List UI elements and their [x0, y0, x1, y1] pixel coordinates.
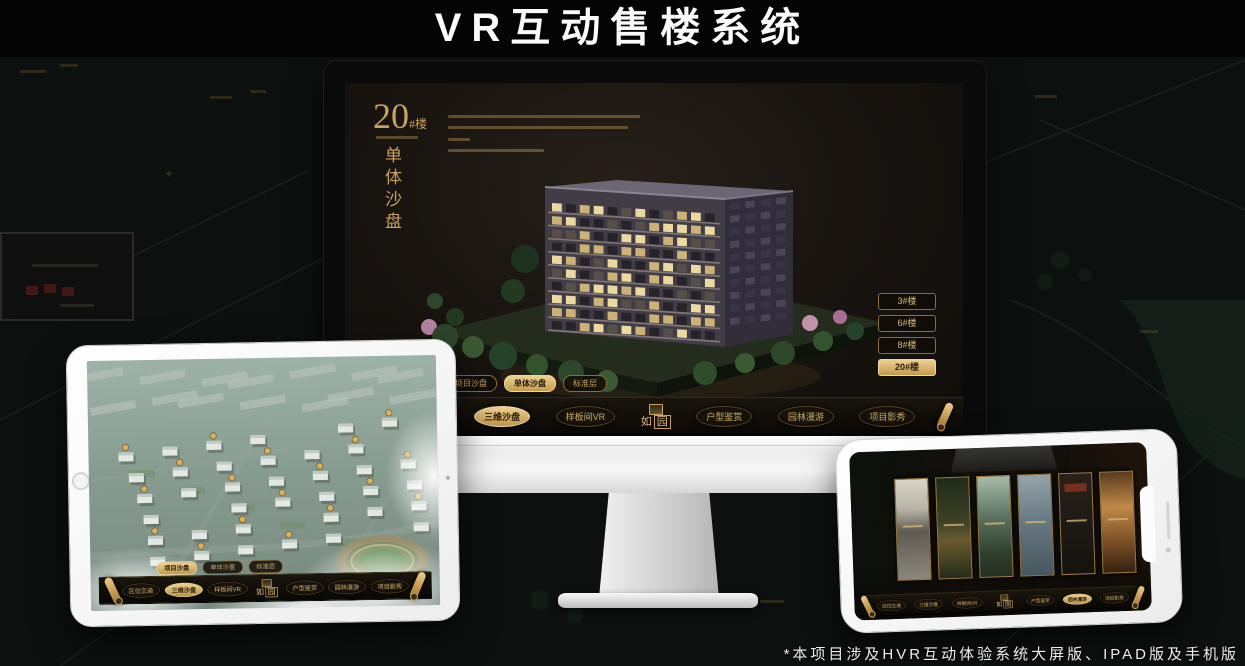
- ipad-device: 项目沙盘 单体沙盘 标准层 区位交通 三维沙盘 样板间VR 如园 户型鉴赏 园林…: [66, 339, 461, 628]
- logo-char-right: 园: [654, 415, 671, 429]
- card-caption: [985, 522, 1004, 525]
- nav-item-project-show[interactable]: 项目影秀: [1100, 591, 1129, 603]
- ceiling-beam: [950, 445, 1058, 473]
- sandbox-heading: 20#楼 单体沙盘: [373, 99, 427, 234]
- heading-number: 20: [373, 96, 409, 136]
- scene-card-building[interactable]: [1017, 473, 1055, 576]
- floor-button-3[interactable]: 3#楼: [878, 293, 936, 310]
- notch: [1140, 486, 1157, 562]
- nav-item-3d-sandbox[interactable]: 三维沙盘: [914, 598, 943, 610]
- nav-item-garden-tour[interactable]: 园林漫游: [778, 406, 834, 427]
- card-caption: [1026, 521, 1045, 524]
- nav-item-project-show[interactable]: 项目影秀: [859, 406, 915, 427]
- nav-item-model-room-vr[interactable]: 样板间VR: [208, 581, 249, 596]
- logo-char-left: 如: [641, 416, 652, 428]
- monitor-view-tabs: 项目沙盘 单体沙盘 标准层: [445, 375, 607, 392]
- logo-char-right: 园: [266, 587, 278, 597]
- nav-item-location[interactable]: 区位交通: [877, 599, 906, 611]
- tab-standard-floor[interactable]: 标准层: [248, 560, 283, 574]
- nav-item-garden-tour[interactable]: 园林漫游: [1063, 593, 1092, 605]
- scene-card-courtyard[interactable]: [935, 476, 973, 579]
- tab-single-sandbox[interactable]: 单体沙盘: [504, 375, 556, 392]
- logo-char-left: 如: [256, 588, 264, 597]
- monitor-stand-neck: [598, 490, 720, 596]
- ipad-bottom-nav: 区位交通 三维沙盘 样板间VR 如园 户型鉴赏 园林漫游 项目影秀: [99, 571, 432, 605]
- scroll-icon[interactable]: [860, 595, 875, 617]
- home-button[interactable]: [72, 472, 90, 490]
- phone-screen: 区位交通 三维沙盘 样板间VR 如园 户型鉴赏 园林漫游 项目影秀: [849, 442, 1152, 620]
- ipad-screen: 项目沙盘 单体沙盘 标准层 区位交通 三维沙盘 样板间VR 如园 户型鉴赏 园林…: [87, 355, 440, 611]
- nav-item-3d-sandbox[interactable]: 三维沙盘: [165, 582, 203, 597]
- building-render: [385, 141, 915, 403]
- scene-card-interior[interactable]: [894, 478, 932, 581]
- tab-standard-floor[interactable]: 标准层: [563, 375, 607, 392]
- camera-dot: [1166, 547, 1171, 552]
- logo-char-right: 园: [1004, 600, 1014, 608]
- nav-item-floorplans[interactable]: 户型鉴赏: [696, 406, 752, 427]
- map-certificate-panel: [0, 232, 134, 321]
- brand-logo: 如园: [996, 594, 1013, 608]
- description-line: [448, 126, 628, 129]
- brand-logo: 如园: [256, 579, 278, 597]
- floor-selector: 3#楼 6#楼 8#楼 20#楼: [878, 293, 936, 376]
- tab-project-sandbox[interactable]: 项目沙盘: [156, 561, 197, 575]
- tab-single-sandbox[interactable]: 单体沙盘: [202, 560, 243, 574]
- scene-card-garden[interactable]: [976, 475, 1014, 578]
- logo-char-left: 如: [996, 601, 1002, 608]
- map-star-glyph: ✦: [164, 167, 174, 181]
- cloud-haze: [385, 410, 440, 542]
- card-caption: [1108, 518, 1127, 521]
- seal-text-mark: [26, 286, 38, 295]
- seal-text-mark: [62, 287, 74, 296]
- seal-icon: [649, 404, 663, 415]
- nav-item-project-show[interactable]: 项目影秀: [370, 578, 408, 593]
- scroll-icon[interactable]: [409, 571, 427, 600]
- nav-item-floorplans[interactable]: 户型鉴赏: [285, 580, 323, 595]
- nav-item-floorplans[interactable]: 户型鉴赏: [1026, 594, 1055, 606]
- scroll-icon[interactable]: [1131, 585, 1145, 608]
- panel-text-line: [60, 304, 94, 307]
- footnote: *本项目涉及HVR互动体验系统大屏版、IPAD版及手机版: [784, 643, 1239, 664]
- title-band: VR互动售楼系统: [0, 0, 1245, 57]
- seal-text-mark: [44, 284, 56, 293]
- page-title: VR互动售楼系统: [0, 0, 1245, 56]
- nav-item-garden-tour[interactable]: 园林漫游: [328, 579, 366, 594]
- scroll-icon[interactable]: [103, 576, 122, 605]
- nav-item-model-room-vr[interactable]: 样板间VR: [556, 406, 616, 427]
- scene-card-shelf[interactable]: [1099, 471, 1137, 574]
- panel-text-line: [32, 264, 98, 267]
- scroll-icon[interactable]: [936, 402, 955, 431]
- heading-subtitle: 单体沙盘: [379, 146, 404, 234]
- card-caption: [1067, 519, 1086, 522]
- scene-gallery: [894, 471, 1136, 581]
- card-caption: [903, 525, 922, 528]
- ipad-view-tabs: 项目沙盘 单体沙盘 标准层: [156, 560, 283, 575]
- heading-suffix: #楼: [409, 117, 427, 131]
- monitor-stand-base: [558, 593, 758, 608]
- heading-english-line: [376, 136, 418, 139]
- scene-card-night[interactable]: [1058, 472, 1096, 575]
- speaker-slit-icon: [1166, 501, 1170, 539]
- card-caption: [944, 524, 963, 527]
- brand-logo: 如园: [641, 404, 671, 428]
- floor-button-20[interactable]: 20#楼: [878, 359, 936, 376]
- phone-device: 区位交通 三维沙盘 样板间VR 如园 户型鉴赏 园林漫游 项目影秀: [835, 428, 1184, 634]
- description-line: [448, 115, 640, 118]
- seal-icon: [262, 579, 272, 587]
- nav-item-model-room-vr[interactable]: 样板间VR: [951, 597, 982, 609]
- camera-dot: [446, 476, 450, 480]
- floor-button-8[interactable]: 8#楼: [878, 337, 936, 354]
- nav-item-3d-sandbox[interactable]: 三维沙盘: [474, 406, 530, 427]
- floor-button-6[interactable]: 6#楼: [878, 315, 936, 332]
- nav-item-location[interactable]: 区位交通: [122, 583, 160, 598]
